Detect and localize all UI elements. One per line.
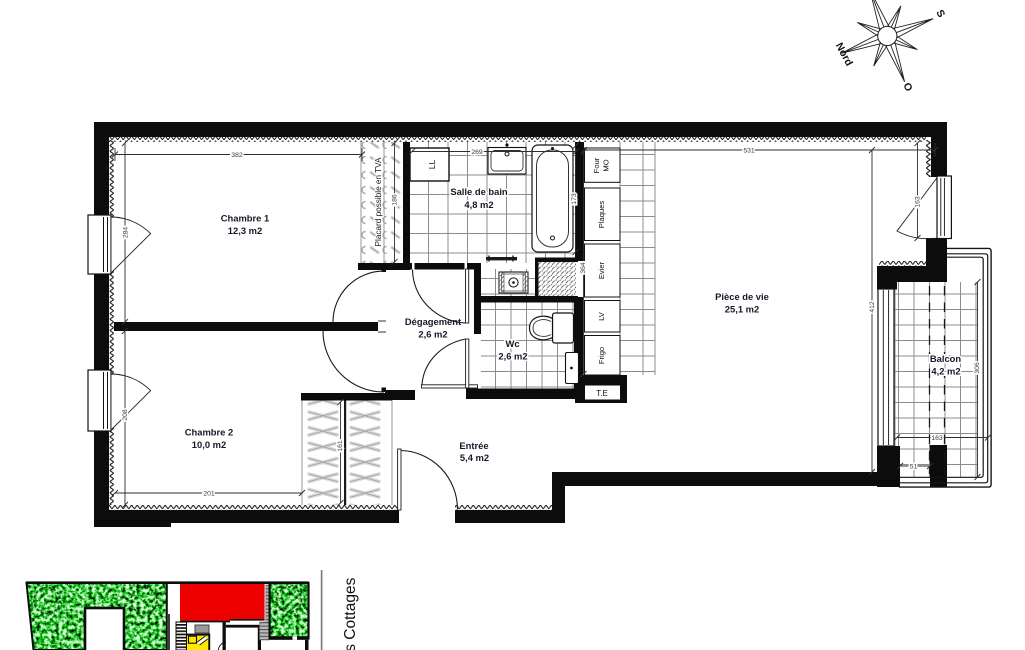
svg-text:4,8 m2: 4,8 m2 (464, 199, 493, 210)
svg-text:269: 269 (471, 149, 483, 156)
svg-text:Dégagement: Dégagement (405, 316, 461, 327)
svg-text:Chambre 1: Chambre 1 (221, 213, 269, 224)
svg-text:51: 51 (910, 464, 918, 471)
svg-text:Placard possible en TVA: Placard possible en TVA (374, 157, 383, 246)
svg-text:412: 412 (869, 301, 876, 313)
svg-text:4,2 m2: 4,2 m2 (931, 366, 960, 377)
svg-text:Balcon: Balcon (930, 353, 962, 364)
svg-text:161: 161 (337, 440, 344, 452)
svg-text:163: 163 (931, 435, 943, 442)
svg-text:O: O (900, 81, 914, 94)
svg-text:Wc: Wc (505, 338, 519, 349)
svg-text:186: 186 (391, 194, 398, 206)
svg-text:Entrée: Entrée (459, 440, 488, 451)
svg-text:LV: LV (597, 311, 606, 321)
svg-text:Plaques: Plaques (597, 201, 606, 229)
svg-text:2,6 m2: 2,6 m2 (498, 351, 527, 362)
svg-text:173: 173 (571, 193, 578, 205)
svg-text:5,4 m2: 5,4 m2 (460, 452, 489, 463)
svg-text:LL: LL (427, 160, 437, 170)
svg-text:12,3 m2: 12,3 m2 (228, 225, 262, 236)
svg-text:163: 163 (914, 196, 921, 208)
svg-text:S: S (933, 8, 947, 20)
svg-text:Les Cottages: Les Cottages (342, 577, 359, 650)
svg-text:T.E: T.E (596, 389, 608, 398)
svg-text:Frigo: Frigo (597, 347, 606, 364)
svg-text:364: 364 (580, 262, 587, 274)
svg-text:Four: Four (592, 157, 601, 173)
svg-text:Evier: Evier (597, 261, 606, 279)
svg-text:531: 531 (743, 148, 755, 155)
svg-text:382: 382 (231, 152, 243, 159)
svg-text:Salle de bain: Salle de bain (450, 186, 508, 197)
svg-text:284: 284 (122, 227, 129, 239)
svg-text:Pièce de vie: Pièce de vie (715, 291, 769, 302)
svg-text:Nord: Nord (833, 41, 855, 68)
svg-text:25,1 m2: 25,1 m2 (725, 304, 759, 315)
svg-text:Chambre 2: Chambre 2 (185, 427, 233, 438)
svg-text:208: 208 (122, 409, 129, 421)
svg-text:306: 306 (974, 362, 981, 374)
svg-text:MO: MO (602, 159, 611, 171)
svg-text:201: 201 (203, 491, 215, 498)
svg-text:10,0 m2: 10,0 m2 (192, 439, 226, 450)
svg-text:2,6 m2: 2,6 m2 (418, 329, 447, 340)
